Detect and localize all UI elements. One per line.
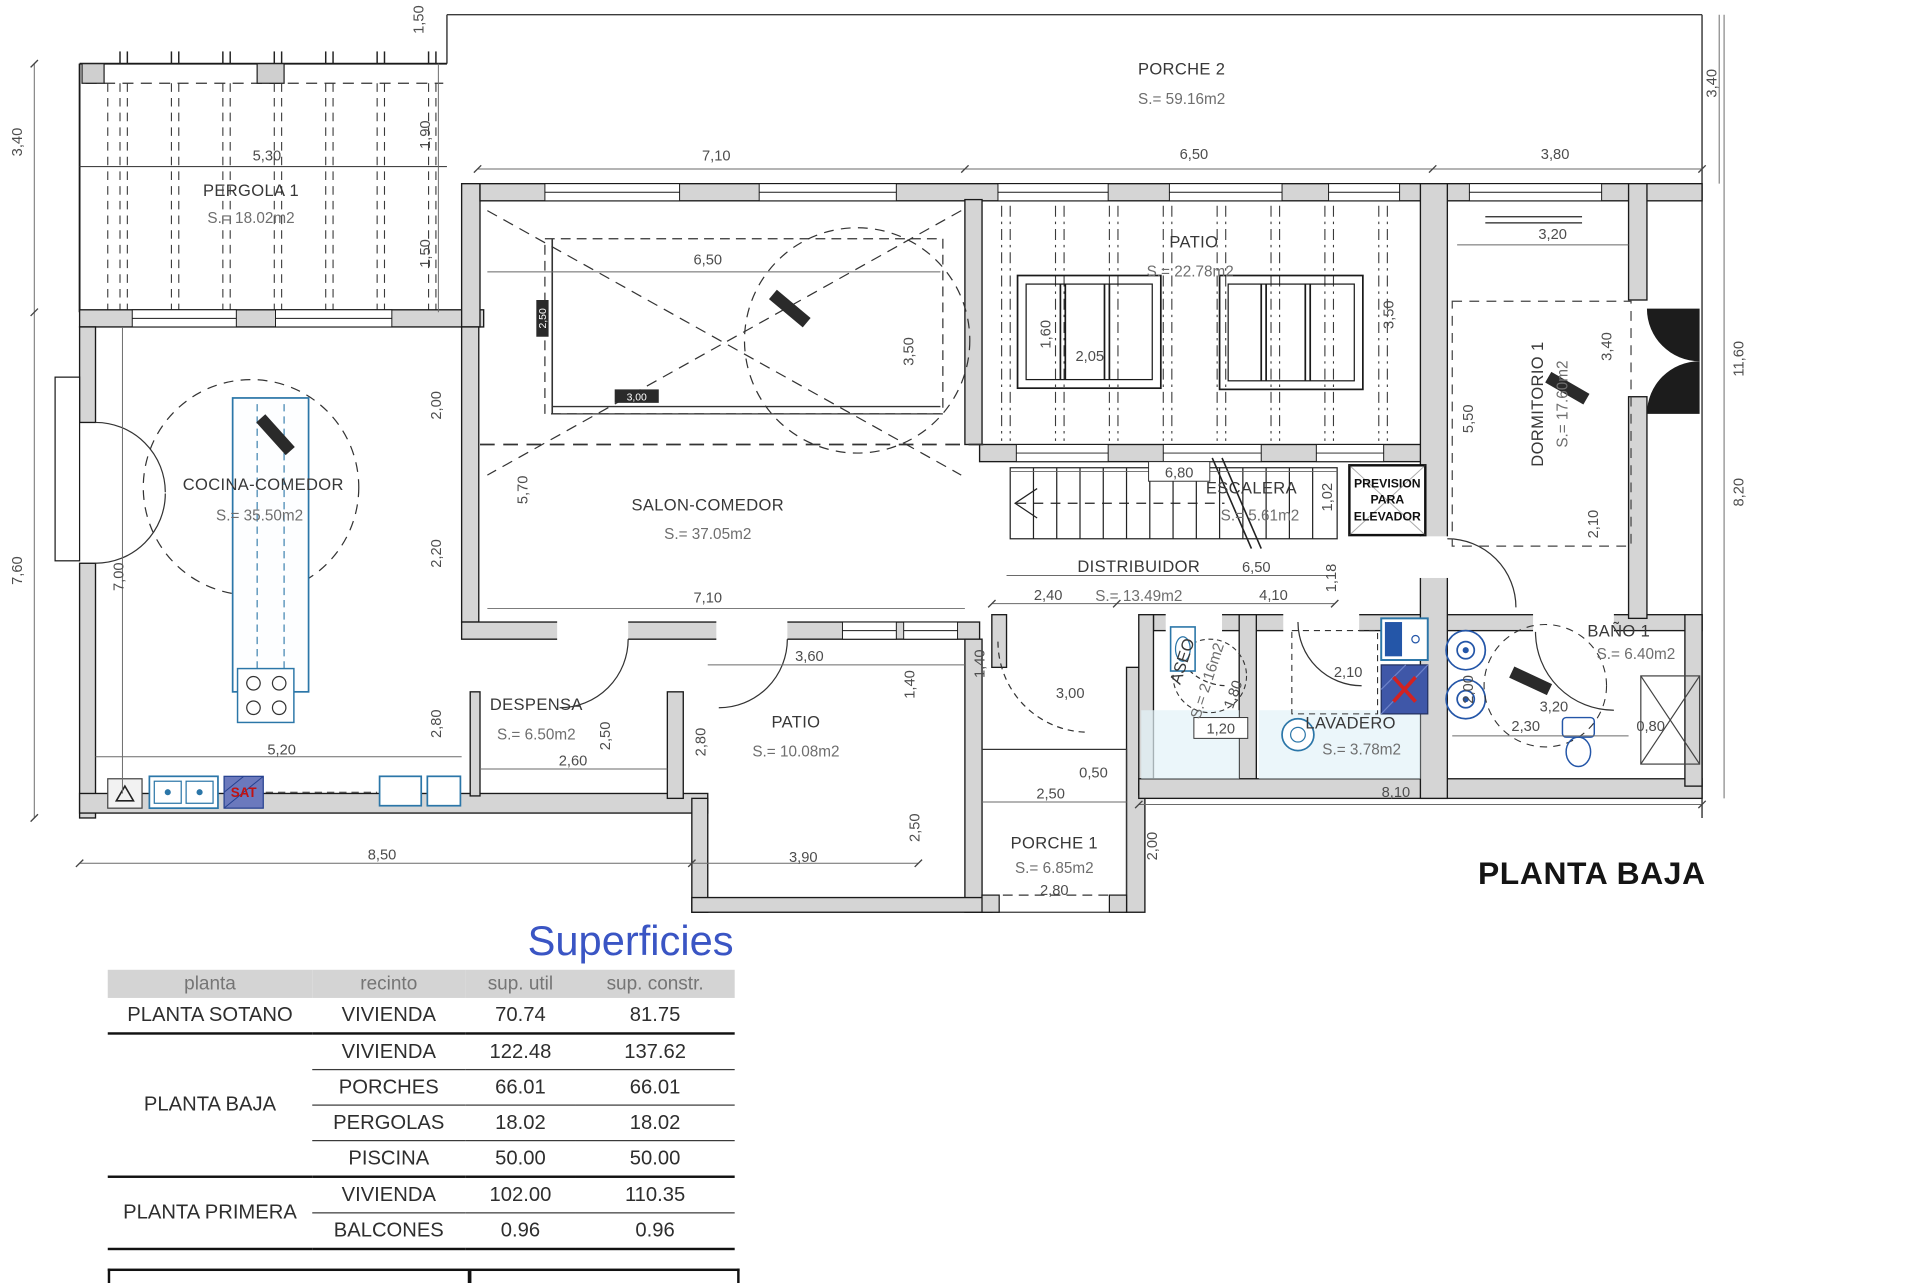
sup-util-cell: 18.02: [465, 1105, 575, 1141]
room-name: PATIO: [1169, 232, 1218, 251]
appliance-icon: [380, 776, 422, 805]
walls: [80, 184, 1702, 913]
sup-util-cell: 0.96: [465, 1213, 575, 1249]
room-name: PERGOLA 1: [203, 181, 299, 200]
sup-constr-cell: 110.35: [576, 1177, 735, 1213]
sup-constr-cell: 18.02: [576, 1105, 735, 1141]
washing-machine-icon: [1381, 618, 1428, 660]
recycle-bin-icon: [108, 779, 142, 808]
dim-label: 3,40: [1599, 332, 1615, 361]
dim-label: 2,60: [559, 753, 588, 769]
room-area: S.= 6.85m2: [1015, 860, 1094, 877]
elevator-note-line: PARA: [1370, 492, 1404, 506]
sup-constr-cell: 81.75: [576, 998, 735, 1034]
dim-label: 2,10: [1334, 665, 1363, 681]
dim-label: 3,40: [1705, 69, 1721, 98]
col-header-sup-constr: sup. constr.: [576, 970, 735, 998]
dim-label: 8,10: [1382, 785, 1411, 801]
dim-label: 3,20: [1538, 227, 1567, 243]
room-area: S.= 10.08m2: [752, 744, 839, 761]
beam-chip-label: 2,50: [538, 308, 549, 328]
dim-label: 2,00: [1145, 832, 1161, 861]
dim-label: 3,50: [1381, 300, 1397, 329]
windows: [132, 184, 1614, 641]
room-name: DORMITORIO 1: [1528, 341, 1547, 466]
sup-constr-cell: 0.96: [576, 1213, 735, 1249]
terrace-door-fan-icon: [1647, 361, 1700, 414]
dim-label: 2,50: [1036, 786, 1065, 802]
appliance-icon: [427, 776, 460, 805]
patio-skylight-frames: [1018, 276, 1363, 390]
dim-label: 2,50: [908, 813, 924, 842]
planta-cell: PLANTA BAJA: [108, 1033, 312, 1176]
room-area: S.= 59.16m2: [1138, 91, 1225, 108]
dim-label: 1,40: [903, 670, 919, 699]
dim-label: 2,80: [1040, 883, 1069, 899]
superficies-title: Superficies: [447, 918, 814, 966]
planta-cell: PLANTA PRIMERA: [108, 1177, 312, 1249]
recinto-cell: BALCONES: [312, 1213, 465, 1249]
dim-label: 5,70: [516, 475, 532, 504]
room-name: PORCHE 1: [1011, 834, 1098, 853]
floor-plan-page: 2,50 3,00 SAT: [0, 0, 1920, 1278]
dim-label: 1,18: [1324, 564, 1340, 593]
toilet-icon: [1562, 718, 1594, 767]
cooktop-icon: [238, 669, 294, 723]
recinto-cell: VIVIENDA: [312, 1033, 465, 1069]
room-name: SALON-COMEDOR: [631, 496, 784, 515]
planta-cell: PLANTA SOTANO: [108, 998, 312, 1034]
room-name: BAÑO 1: [1587, 622, 1650, 641]
dim-label: 8,20: [1732, 478, 1748, 507]
sup-util-cell: 66.01: [465, 1070, 575, 1106]
room-area: S.= 37.05m2: [664, 526, 751, 543]
room-area: S.= 35.50m2: [216, 507, 303, 524]
room-area: S.= 5.61m2: [1221, 507, 1300, 524]
dim-label: 0,80: [1636, 719, 1665, 735]
recinto-cell: PERGOLAS: [312, 1105, 465, 1141]
sup-constr-cell: 50.00: [576, 1141, 735, 1177]
dim-label: 2,80: [429, 709, 445, 738]
dryer-icon: [1381, 665, 1428, 714]
dim-label: 2,10: [1586, 510, 1602, 539]
beam-chip-label: 3,00: [627, 392, 647, 403]
dim-label: 6,80: [1165, 466, 1194, 482]
room-area: S.= 18.02m2: [207, 210, 294, 227]
dim-label: 1,90: [418, 120, 434, 149]
room-name: LAVADERO: [1305, 714, 1395, 733]
recinto-cell: PISCINA: [312, 1141, 465, 1177]
sup-util-cell: 70.74: [465, 998, 575, 1034]
elevator-note-line: PREVISION: [1354, 476, 1421, 490]
room-area: S.= 6.40m2: [1597, 646, 1676, 663]
room-name: PATIO: [771, 712, 820, 731]
dim-label: 0,50: [1079, 766, 1108, 782]
superficies-table: planta recinto sup. util sup. constr. PL…: [108, 970, 735, 1250]
kitchen-island: [143, 380, 359, 723]
dim-label: 11,60: [1732, 341, 1748, 377]
dim-label: 7,00: [112, 562, 128, 591]
table-row: PLANTA BAJA VIVIENDA 122.48 137.62: [108, 1033, 735, 1069]
dim-label: 1,50: [412, 5, 428, 34]
room-area: S.= 17.60m2: [1554, 360, 1571, 447]
room-name: ESCALERA: [1206, 478, 1297, 497]
dim-label: 5,20: [267, 742, 296, 758]
dim-label: 3,90: [789, 850, 818, 866]
beam-chips: 2,50 3,00: [536, 290, 810, 404]
dim-label: 3,80: [1541, 147, 1570, 163]
sat-unit: SAT: [224, 776, 263, 808]
dim-label: 4,10: [1259, 588, 1288, 604]
sup-util-cell: 102.00: [465, 1177, 575, 1213]
double-sink-icon: [149, 776, 218, 808]
recinto-cell: VIVIENDA: [312, 998, 465, 1034]
room-area: S.= 22.78m2: [1147, 264, 1234, 281]
dim-label: 3,20: [1540, 699, 1569, 715]
room-name: PORCHE 2: [1138, 60, 1225, 79]
dim-label: 1,40: [972, 649, 988, 678]
dim-label: 1,60: [1039, 320, 1055, 349]
room-area: S.= 3.78m2: [1322, 741, 1401, 758]
room-name: DISTRIBUIDOR: [1077, 557, 1200, 576]
table-row: PLANTA SOTANO VIVIENDA 70.74 81.75: [108, 998, 735, 1034]
sup-constr-cell: 66.01: [576, 1070, 735, 1106]
dim-label: 7,10: [693, 590, 722, 606]
terrace-door-fan-icon: [1647, 309, 1700, 362]
dim-label: 5,30: [253, 148, 282, 164]
dim-label: 1,50: [418, 239, 434, 268]
dim-label: 8,50: [368, 848, 397, 864]
dim-label: 2,50: [598, 722, 614, 751]
dim-label: 2,00: [1461, 675, 1477, 704]
col-header-planta: planta: [108, 970, 312, 998]
col-header-sup-util: sup. util: [465, 970, 575, 998]
dim-label: 2,80: [693, 728, 709, 757]
elevator-note-line: ELEVADOR: [1354, 509, 1421, 523]
dim-label: 6,50: [693, 252, 722, 268]
table-header-row: planta recinto sup. util sup. constr.: [108, 970, 735, 998]
dim-label: 3,00: [1056, 686, 1085, 702]
col-header-recinto: recinto: [312, 970, 465, 998]
dim-label: 6,50: [1242, 560, 1271, 576]
dim-label: 3,50: [901, 337, 917, 366]
dim-label: 1,20: [1207, 721, 1236, 737]
floor-plan-title: PLANTA BAJA: [1478, 855, 1706, 891]
room-name: DESPENSA: [490, 695, 583, 714]
dim-label: 7,60: [10, 556, 26, 585]
totals-table-partial: [108, 1269, 740, 1283]
dim-label: 2,05: [1075, 349, 1104, 365]
dim-label: 3,40: [10, 128, 26, 157]
room-area: S.= 6.50m2: [497, 727, 576, 744]
dim-label: 7,10: [702, 148, 731, 164]
sup-util-cell: 50.00: [465, 1141, 575, 1177]
dim-label: 2,30: [1511, 719, 1540, 735]
sup-constr-cell: 137.62: [576, 1033, 735, 1069]
recinto-cell: VIVIENDA: [312, 1177, 465, 1213]
sat-label: SAT: [231, 785, 258, 800]
dim-label: 1,02: [1320, 483, 1336, 512]
dim-label: 6,50: [1180, 147, 1209, 163]
sup-util-cell: 122.48: [465, 1033, 575, 1069]
dim-label: 2,00: [429, 391, 445, 420]
recinto-cell: PORCHES: [312, 1070, 465, 1106]
table-row: PLANTA PRIMERA VIVIENDA 102.00 110.35: [108, 1177, 735, 1213]
dim-label: 3,60: [795, 649, 824, 665]
room-area: S.= 13.49m2: [1095, 588, 1182, 605]
dim-label: 5,50: [1461, 404, 1477, 433]
dim-label: 2,40: [1034, 588, 1063, 604]
dim-label: 2,20: [429, 539, 445, 568]
room-name: COCINA-COMEDOR: [183, 475, 344, 494]
